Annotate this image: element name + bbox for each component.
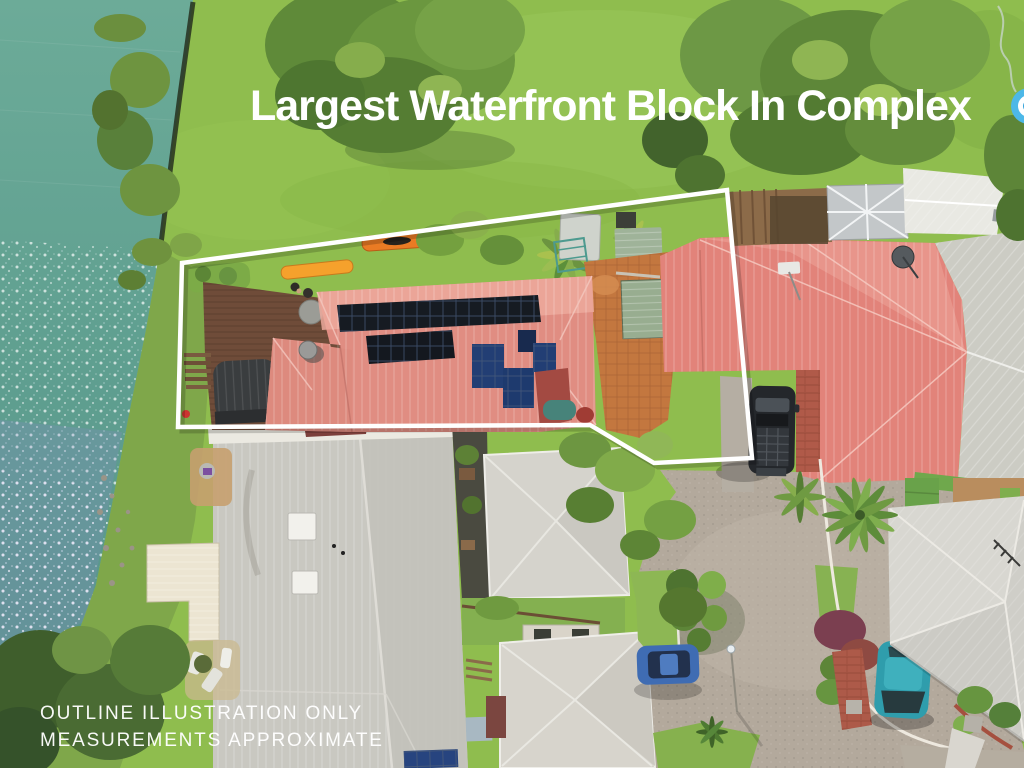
bird [341,551,345,555]
spiky-plant [696,716,728,748]
skylight [292,571,318,594]
headline: Largest Waterfront Block In Complex [250,82,1010,131]
blue-sedan [636,644,699,685]
red-shrub [576,407,594,423]
satellite-dish [299,341,317,359]
disclaimer: OUTLINE ILLUSTRATION ONLY MEASUREMENTS A… [40,701,384,755]
skylight [288,513,316,540]
logo-ring [1018,95,1024,117]
disclaimer-line-1: OUTLINE ILLUSTRATION ONLY [40,701,384,728]
compost-bin [616,212,636,228]
garden-shed [559,213,601,260]
teal-tank [543,400,576,420]
maroon-box [486,696,506,738]
aerial-photo: Largest Waterfront Block In Complex OUTL… [0,0,1024,768]
purple-item [203,468,212,475]
patio-umbrella [194,655,212,673]
disclaimer-line-2: MEASUREMENTS APPROXIMATE [40,728,384,755]
bird [332,544,336,548]
